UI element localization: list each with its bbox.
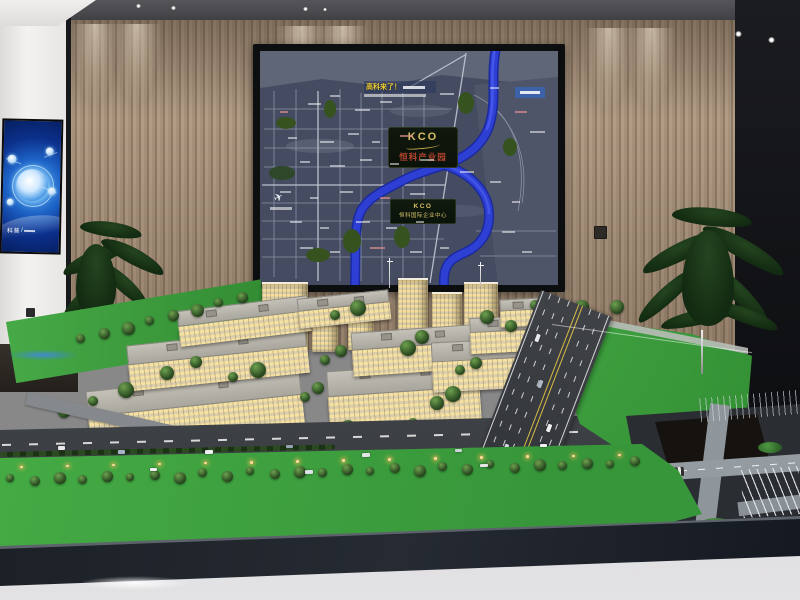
tree [228, 372, 238, 382]
floor-reflection [80, 576, 190, 590]
street-lamp-icon [112, 464, 115, 467]
tree [99, 328, 110, 339]
tree [122, 322, 135, 335]
model-car [305, 470, 313, 474]
rooftop-unit [513, 301, 524, 309]
parking-markings [740, 466, 800, 518]
tree [237, 292, 248, 303]
rooftop-mast-icon [389, 258, 390, 288]
tree [455, 365, 465, 375]
rooftop-unit [258, 304, 269, 312]
rooftop-unit [380, 333, 391, 341]
tree [300, 392, 310, 402]
scale-model [0, 0, 800, 600]
street-lamp-icon [250, 461, 253, 464]
model-car [150, 468, 157, 471]
tree [118, 382, 134, 398]
tree [160, 366, 174, 380]
tree [606, 460, 614, 468]
model-car [537, 380, 544, 389]
tree [350, 300, 366, 316]
tree [76, 334, 85, 343]
tree [78, 475, 87, 484]
tree [480, 310, 494, 324]
tree [222, 471, 233, 482]
glass-support-rod [701, 330, 703, 374]
tree [445, 386, 461, 402]
tree [400, 340, 416, 356]
street-lamp-icon [20, 466, 23, 469]
tree [335, 345, 347, 357]
tree [150, 470, 160, 480]
rooftop-unit [434, 330, 444, 338]
street-lamp-icon [572, 455, 575, 458]
street-lamp-icon [66, 465, 69, 468]
base-led-glow [6, 350, 80, 360]
tree [610, 300, 624, 314]
street-lamp-icon [618, 454, 621, 457]
tree [534, 459, 546, 471]
tree [312, 382, 324, 394]
rooftop-mast-icon [480, 262, 481, 286]
model-car [362, 453, 370, 457]
rooftop-unit [205, 309, 217, 317]
showroom-photo: { "board": { "banner_headline": "高科来了！",… [0, 0, 800, 600]
tree [320, 355, 330, 365]
street-lamp-icon [434, 457, 437, 460]
tree [6, 474, 14, 482]
model-car [286, 445, 293, 448]
model-car [546, 424, 553, 433]
tree [145, 316, 154, 325]
tree [168, 310, 179, 321]
street-lamp-icon [158, 463, 161, 466]
rooftop-unit [452, 344, 463, 352]
street-lamp-icon [296, 460, 299, 463]
model-car [118, 450, 125, 454]
tree [462, 464, 473, 475]
tree [214, 298, 223, 307]
tree [88, 396, 98, 406]
factory-building [297, 289, 392, 328]
tree [438, 462, 447, 471]
tree [415, 330, 429, 344]
model-car [58, 446, 65, 450]
street-lamp-icon [342, 459, 345, 462]
tree [510, 463, 520, 473]
tree [470, 357, 482, 369]
model-car [540, 444, 547, 447]
rooftop-unit [317, 299, 329, 307]
tree [582, 458, 593, 469]
model-car [534, 334, 541, 343]
street-lamp-icon [480, 456, 483, 459]
model-car [455, 449, 462, 452]
street-lamp-icon [388, 458, 391, 461]
tree [191, 304, 204, 317]
model-car [480, 464, 488, 467]
tree [190, 356, 202, 368]
tree [430, 396, 444, 410]
tree [366, 467, 374, 475]
green-patch [758, 442, 782, 453]
tree [330, 310, 340, 320]
street-lamp-icon [526, 455, 529, 458]
tree [505, 320, 517, 332]
tree [250, 362, 266, 378]
rooftop-unit [166, 343, 178, 351]
model-car [205, 450, 213, 454]
